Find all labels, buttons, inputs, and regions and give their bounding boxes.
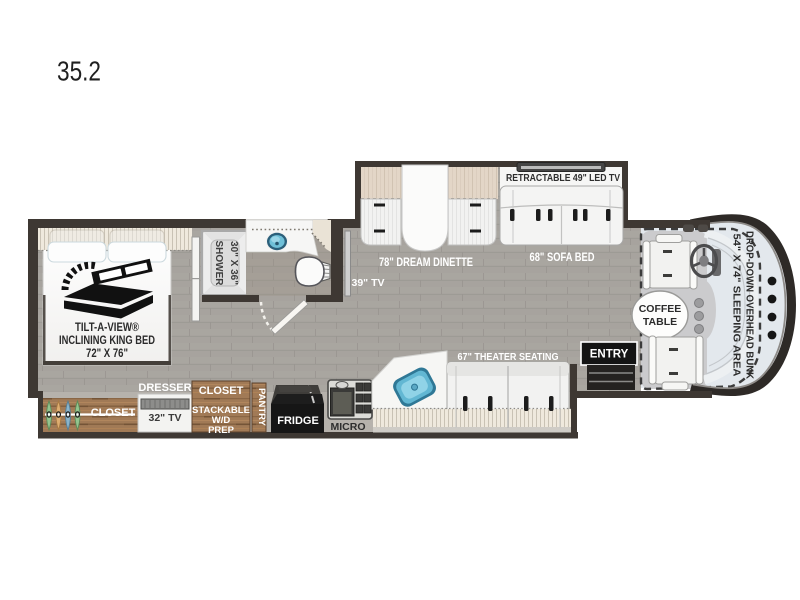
svg-text:RETRACTABLE 49" LED TV: RETRACTABLE 49" LED TV [506, 172, 620, 184]
svg-text:39" TV: 39" TV [352, 277, 385, 289]
svg-text:ENTRY: ENTRY [590, 349, 629, 361]
svg-text:PREP: PREP [208, 425, 235, 436]
svg-text:PANTRY: PANTRY [256, 388, 267, 427]
svg-text:68" SOFA BED: 68" SOFA BED [530, 252, 595, 264]
svg-text:67" THEATER SEATING: 67" THEATER SEATING [458, 351, 559, 363]
svg-text:TILT-A-VIEW®: TILT-A-VIEW® [75, 322, 139, 334]
svg-text:COFFEE: COFFEE [639, 303, 682, 315]
svg-text:30" X 36": 30" X 36" [228, 241, 239, 285]
svg-text:78" DREAM DINETTE: 78" DREAM DINETTE [379, 257, 473, 269]
svg-text:35.2: 35.2 [57, 56, 101, 87]
svg-text:CLOSET: CLOSET [91, 407, 136, 419]
svg-text:DROP-DOWN OVERHEAD BUNK: DROP-DOWN OVERHEAD BUNK [744, 231, 756, 379]
svg-text:SHOWER: SHOWER [213, 241, 224, 287]
svg-text:FRIDGE: FRIDGE [277, 415, 319, 427]
svg-text:32" TV: 32" TV [149, 412, 182, 424]
svg-text:DRESSER: DRESSER [138, 382, 191, 394]
svg-text:INCLINING KING BED: INCLINING KING BED [59, 335, 155, 347]
svg-text:CLOSET: CLOSET [199, 385, 244, 397]
svg-text:TABLE: TABLE [643, 316, 677, 328]
svg-text:72" X 76": 72" X 76" [86, 348, 128, 360]
svg-text:54" X 74" SLEEPING AREA: 54" X 74" SLEEPING AREA [731, 234, 743, 377]
svg-text:MICRO: MICRO [331, 421, 366, 433]
